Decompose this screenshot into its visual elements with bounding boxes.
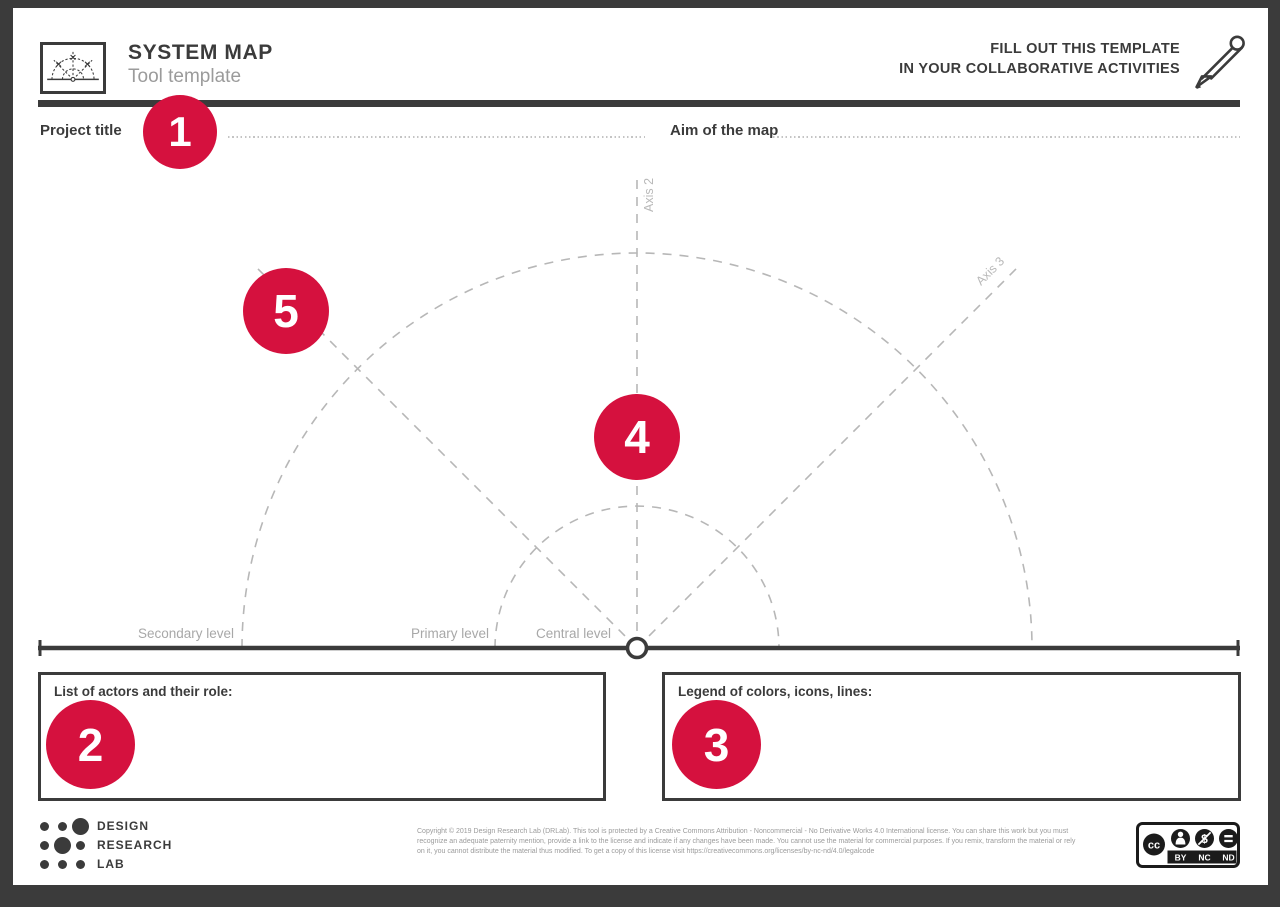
legend-panel-label: Legend of colors, icons, lines: — [678, 684, 872, 699]
system-map-mini-diagram-icon — [44, 44, 102, 93]
page-title: SYSTEM MAP — [128, 41, 273, 65]
project-title-input-line[interactable] — [228, 136, 645, 138]
system-map-template-page: SYSTEM MAP Tool template FILL OUT THIS T… — [0, 0, 1280, 907]
cta-line-1: FILL OUT THIS TEMPLATE — [760, 39, 1180, 59]
logo-dot — [54, 837, 71, 854]
drlab-wordmark: DESIGN RESEARCH LAB — [97, 817, 172, 874]
aim-of-map-label: Aim of the map — [670, 122, 778, 139]
step-badge-2: 2 — [46, 700, 135, 789]
cc-icon: cc — [1148, 840, 1160, 852]
cta-line-2: IN YOUR COLLABORATIVE ACTIVITIES — [760, 59, 1180, 79]
step-badge-1: 1 — [143, 95, 217, 169]
drlab-line-research: RESEARCH — [97, 836, 172, 855]
copyright-line-2: recognize an adequate paternity mention,… — [417, 837, 1122, 847]
logo-dot — [40, 822, 49, 831]
logo-dot — [72, 818, 89, 835]
logo-dot — [76, 841, 85, 850]
by-label: BY — [1175, 852, 1187, 862]
copyright-text: Copyright © 2019 Design Research Lab (DR… — [417, 827, 1122, 857]
header-divider — [38, 100, 1240, 107]
logo-dot — [76, 860, 85, 869]
drlab-line-lab: LAB — [97, 855, 172, 874]
drlab-logo-icon — [40, 817, 94, 874]
step-badge-4: 4 — [594, 394, 680, 480]
page-subtitle: Tool template — [128, 66, 241, 88]
logo-dot — [58, 822, 67, 831]
logo-dot — [40, 860, 49, 869]
step-badge-5: 5 — [243, 268, 329, 354]
aim-of-map-input-line[interactable] — [773, 136, 1240, 138]
app-logo — [40, 42, 106, 94]
copyright-line-1: Copyright © 2019 Design Research Lab (DR… — [417, 827, 1122, 837]
copyright-line-3: on it, you cannot distribute the materia… — [417, 847, 1122, 857]
nd-icon — [1219, 829, 1238, 848]
cta-text: FILL OUT THIS TEMPLATE IN YOUR COLLABORA… — [760, 39, 1180, 79]
nd-label: ND — [1222, 852, 1234, 862]
step-badge-3: 3 — [672, 700, 761, 789]
logo-dot — [40, 841, 49, 850]
cc-by-nc-nd-badge-icon: cc $ BY NC ND — [1136, 822, 1240, 873]
drlab-line-design: DESIGN — [97, 817, 172, 836]
nc-label: NC — [1198, 852, 1210, 862]
project-title-label: Project title — [40, 122, 122, 139]
pencil-icon — [1192, 33, 1248, 96]
logo-dot — [58, 860, 67, 869]
actors-panel-label: List of actors and their role: — [54, 684, 233, 699]
